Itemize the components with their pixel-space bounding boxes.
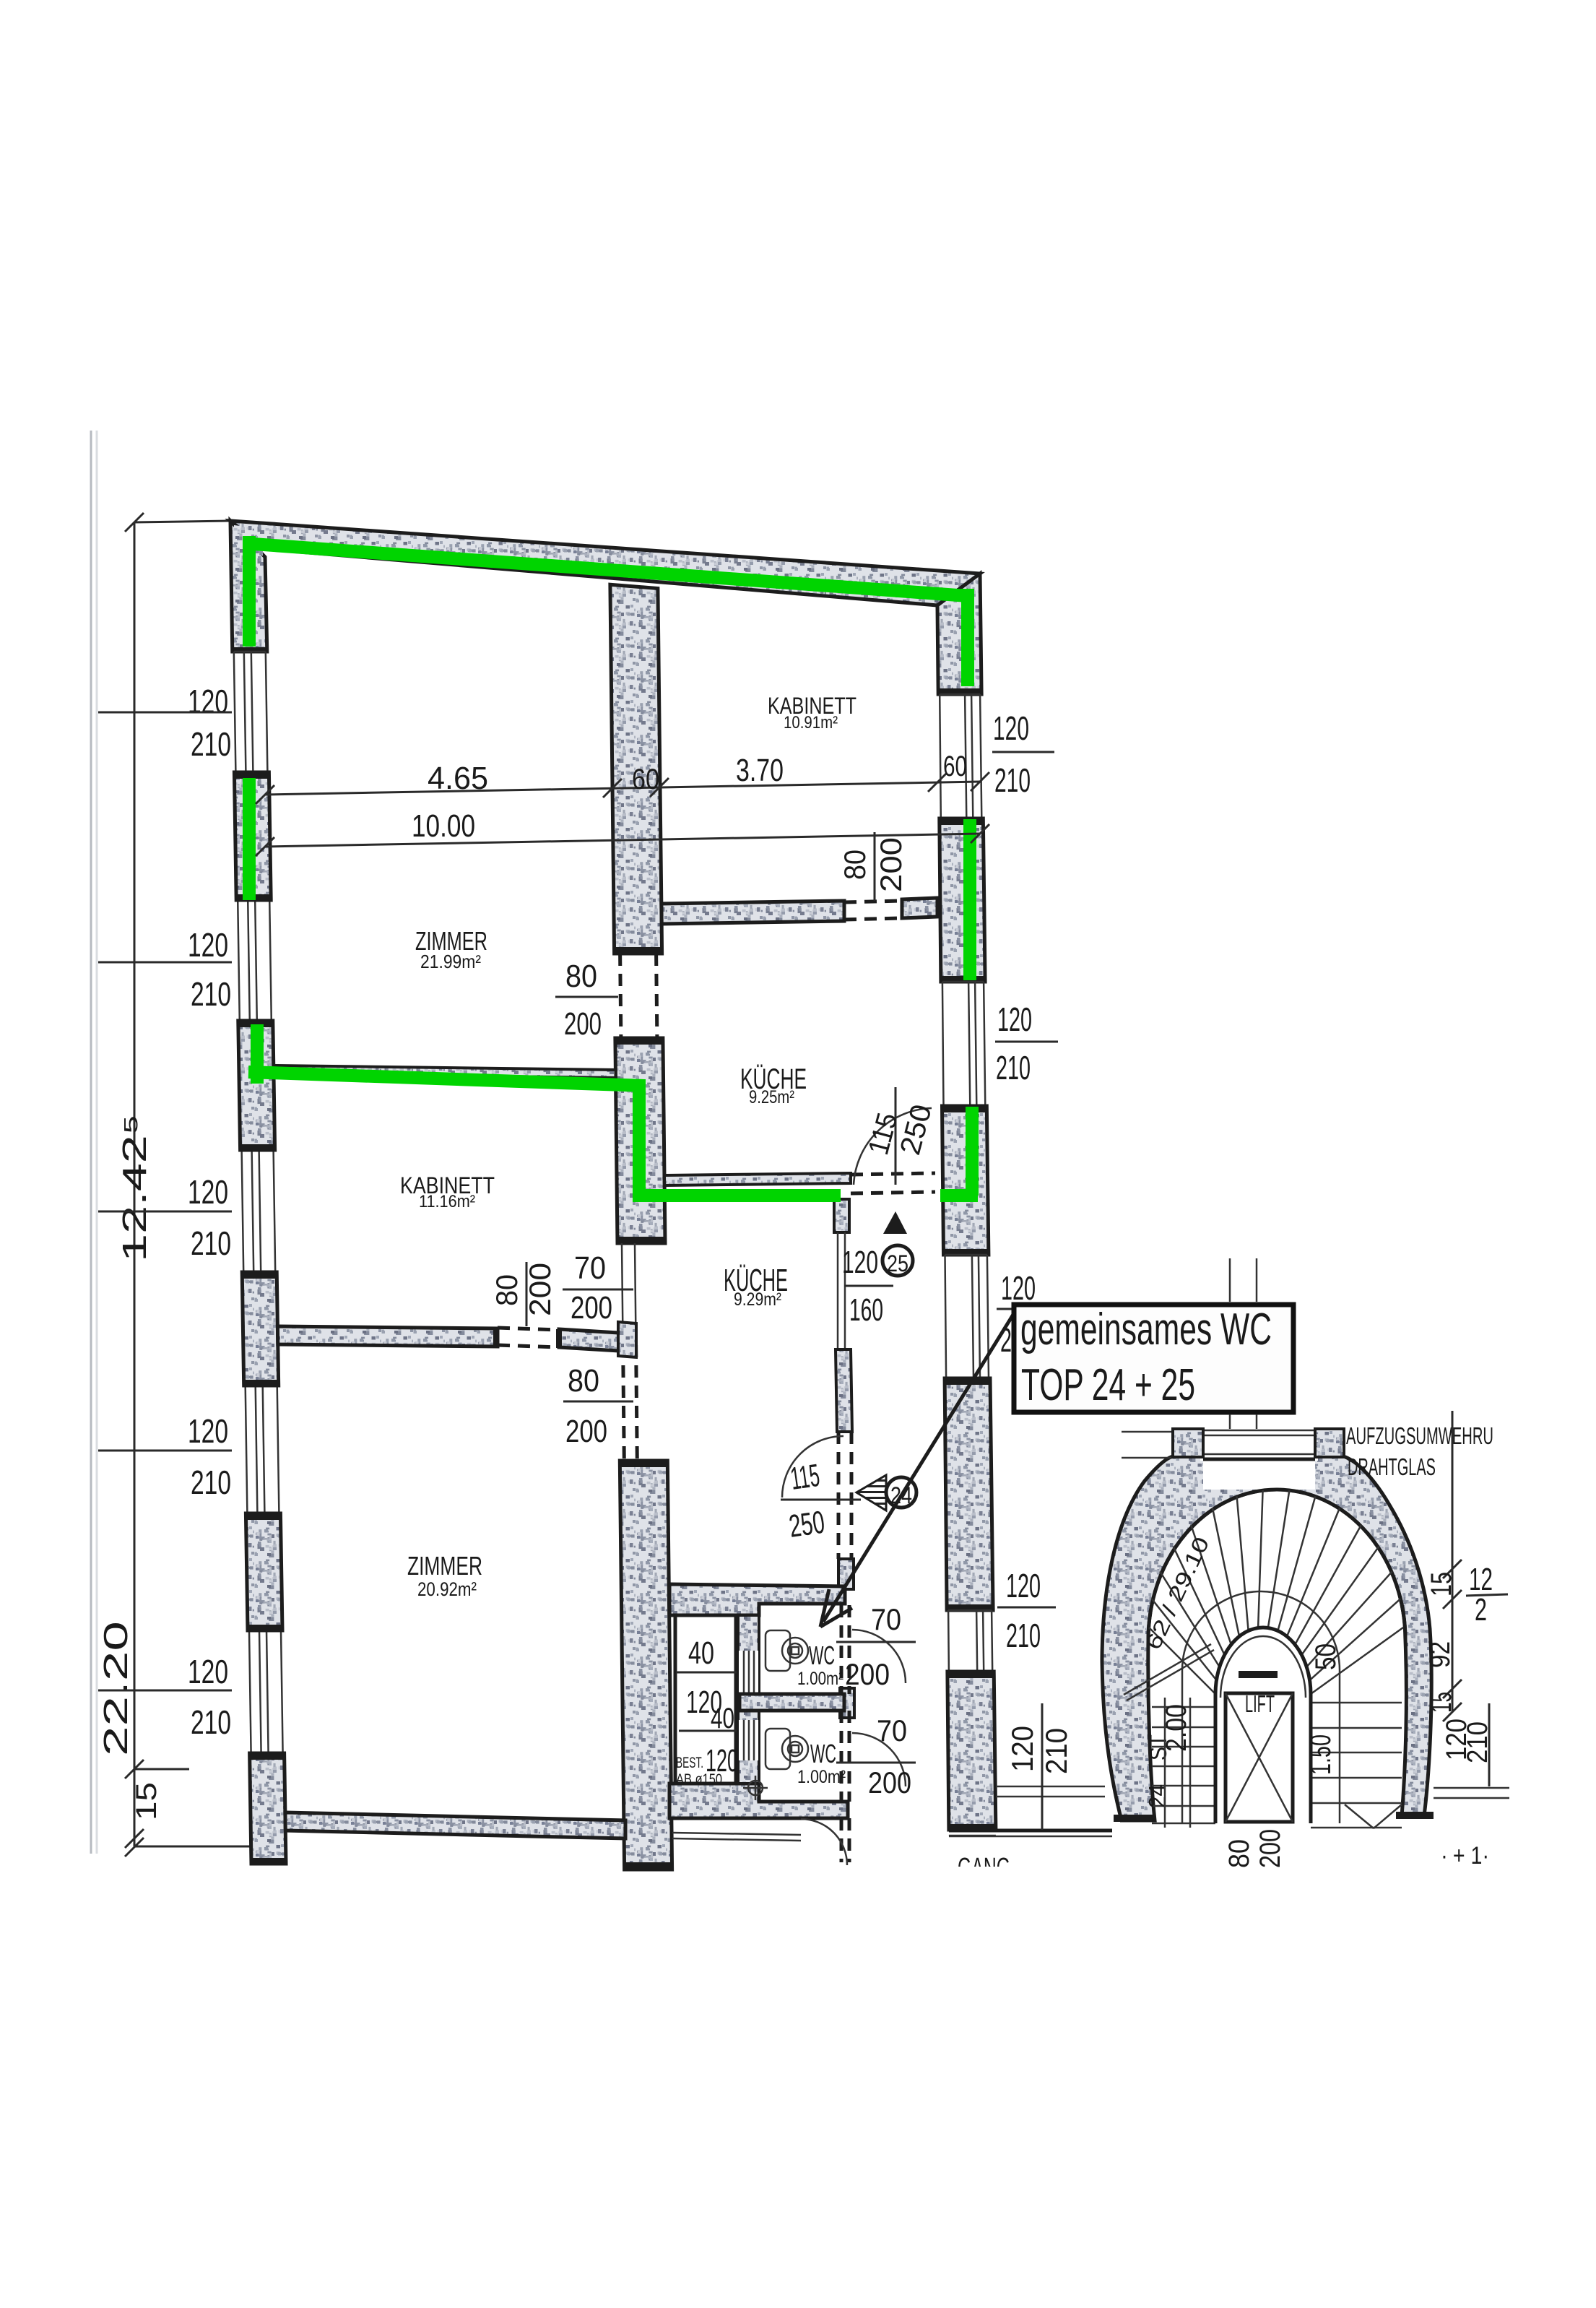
svg-text:200: 200 bbox=[565, 1414, 607, 1449]
svg-text:21.99m²: 21.99m² bbox=[420, 951, 481, 972]
svg-text:80: 80 bbox=[490, 1274, 524, 1306]
svg-text:210: 210 bbox=[1462, 1721, 1493, 1763]
svg-text:200: 200 bbox=[1254, 1829, 1286, 1868]
svg-text:25: 25 bbox=[887, 1250, 908, 1276]
svg-text:10.00: 10.00 bbox=[412, 808, 475, 844]
svg-text:2: 2 bbox=[1475, 1592, 1487, 1628]
svg-text:200: 200 bbox=[845, 1657, 890, 1691]
svg-text:160: 160 bbox=[849, 1292, 883, 1328]
svg-text:200: 200 bbox=[571, 1290, 612, 1326]
svg-text:120: 120 bbox=[1001, 1269, 1036, 1307]
svg-text:70: 70 bbox=[871, 1602, 901, 1636]
svg-text:1.50: 1.50 bbox=[1305, 1734, 1337, 1775]
svg-text:9.25m²: 9.25m² bbox=[749, 1087, 794, 1107]
svg-text:80: 80 bbox=[1223, 1839, 1255, 1868]
svg-text:200: 200 bbox=[523, 1263, 557, 1316]
svg-text:120: 120 bbox=[1006, 1567, 1041, 1604]
svg-text:TOP 24 + 25: TOP 24 + 25 bbox=[1021, 1360, 1195, 1410]
svg-text:120: 120 bbox=[188, 1173, 228, 1211]
svg-text:3.70: 3.70 bbox=[736, 753, 784, 788]
svg-text:ZIMMER: ZIMMER bbox=[407, 1551, 482, 1581]
svg-text:LIFT: LIFT bbox=[1245, 1690, 1275, 1717]
svg-text:200: 200 bbox=[874, 837, 908, 892]
svg-text:10.91m²: 10.91m² bbox=[784, 713, 838, 732]
svg-text:80: 80 bbox=[838, 850, 872, 880]
svg-text:40: 40 bbox=[711, 1703, 734, 1734]
svg-text:60: 60 bbox=[943, 751, 967, 782]
svg-text:22.20: 22.20 bbox=[97, 1621, 134, 1756]
svg-text:120: 120 bbox=[993, 709, 1029, 747]
svg-text:210: 210 bbox=[1006, 1617, 1041, 1654]
svg-text:60: 60 bbox=[632, 764, 659, 795]
svg-text:210: 210 bbox=[1039, 1728, 1073, 1774]
svg-text:WC: WC bbox=[809, 1641, 835, 1670]
svg-text:200: 200 bbox=[868, 1765, 911, 1799]
svg-text:80: 80 bbox=[568, 1363, 599, 1399]
svg-text:4.65: 4.65 bbox=[428, 761, 488, 796]
svg-text:80: 80 bbox=[565, 959, 597, 994]
svg-text:9.29m²: 9.29m² bbox=[734, 1289, 781, 1310]
svg-text:DRAHTGLAS: DRAHTGLAS bbox=[1348, 1453, 1436, 1480]
svg-text:120: 120 bbox=[188, 1412, 228, 1450]
svg-text:210: 210 bbox=[996, 1049, 1031, 1086]
svg-text:120: 120 bbox=[997, 1000, 1032, 1038]
svg-text:15: 15 bbox=[1426, 1572, 1457, 1596]
svg-text:92: 92 bbox=[1424, 1641, 1456, 1668]
svg-text:70: 70 bbox=[574, 1250, 606, 1286]
svg-text:210: 210 bbox=[994, 761, 1031, 799]
svg-text:250: 250 bbox=[787, 1505, 827, 1544]
svg-text:24: 24 bbox=[1144, 1784, 1171, 1808]
svg-text:1.00m²: 1.00m² bbox=[797, 1669, 843, 1689]
svg-text:WC: WC bbox=[810, 1739, 836, 1768]
svg-text:210: 210 bbox=[191, 1224, 231, 1262]
svg-text:15: 15 bbox=[1426, 1692, 1457, 1713]
svg-text:BEST.: BEST. bbox=[676, 1755, 703, 1771]
svg-text:12.42⁵: 12.42⁵ bbox=[116, 1114, 153, 1262]
svg-text:210: 210 bbox=[191, 725, 231, 763]
svg-text:210: 210 bbox=[191, 975, 231, 1013]
svg-text:115: 115 bbox=[789, 1458, 822, 1497]
svg-text:120: 120 bbox=[1005, 1726, 1039, 1772]
svg-text:120: 120 bbox=[842, 1245, 878, 1280]
svg-text:1.00m²: 1.00m² bbox=[797, 1767, 846, 1787]
svg-text:70: 70 bbox=[877, 1713, 907, 1747]
svg-text:∙ + 1·: ∙ + 1· bbox=[1441, 1842, 1489, 1870]
svg-text:15: 15 bbox=[131, 1782, 162, 1820]
svg-text:120: 120 bbox=[188, 1653, 228, 1690]
svg-text:AUFZUGSUMWEHRU: AUFZUGSUMWEHRU bbox=[1346, 1422, 1493, 1449]
svg-text:210: 210 bbox=[191, 1703, 231, 1741]
svg-text:50: 50 bbox=[1310, 1643, 1342, 1670]
svg-text:210: 210 bbox=[191, 1464, 231, 1501]
svg-text:20.92m²: 20.92m² bbox=[417, 1578, 477, 1600]
svg-text:40: 40 bbox=[688, 1635, 714, 1671]
svg-text:200: 200 bbox=[564, 1006, 602, 1042]
svg-text:120: 120 bbox=[188, 683, 228, 720]
svg-text:11.16m²: 11.16m² bbox=[419, 1192, 475, 1211]
svg-text:120: 120 bbox=[188, 926, 228, 964]
svg-text:gemeinsames WC: gemeinsames WC bbox=[1020, 1305, 1272, 1354]
svg-text:AB ø150: AB ø150 bbox=[676, 1771, 722, 1788]
svg-text:ST: ST bbox=[1145, 1734, 1171, 1760]
